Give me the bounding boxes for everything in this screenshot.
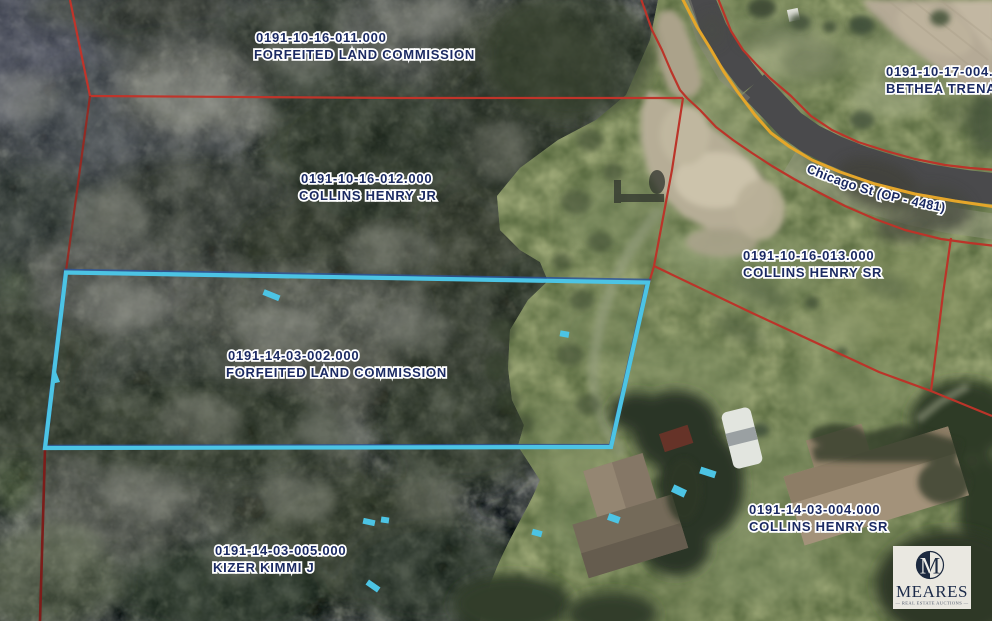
svg-text:— REAL ESTATE AUCTIONS —: — REAL ESTATE AUCTIONS — xyxy=(894,601,968,606)
svg-text:0191-10-16-012.000: 0191-10-16-012.000 xyxy=(301,171,432,186)
svg-text:KIZER KIMMI J: KIZER KIMMI J xyxy=(213,560,314,575)
svg-text:0191-10-16-011.000: 0191-10-16-011.000 xyxy=(256,30,387,45)
svg-text:COLLINS HENRY SR: COLLINS HENRY SR xyxy=(749,519,888,534)
svg-text:MEARES: MEARES xyxy=(896,582,968,601)
svg-text:0191-14-03-002.000: 0191-14-03-002.000 xyxy=(228,348,359,363)
svg-text:COLLINS HENRY SR: COLLINS HENRY SR xyxy=(743,265,882,280)
svg-text:COLLINS HENRY JR: COLLINS HENRY JR xyxy=(299,188,437,203)
svg-text:BETHEA TRENA: BETHEA TRENA xyxy=(886,81,992,96)
svg-text:FORFEITED LAND COMMISSION: FORFEITED LAND COMMISSION xyxy=(254,47,475,62)
svg-text:0191-10-17-004.0: 0191-10-17-004.0 xyxy=(886,64,992,79)
svg-text:0191-14-03-004.000: 0191-14-03-004.000 xyxy=(749,502,880,517)
svg-text:0191-10-16-013.000: 0191-10-16-013.000 xyxy=(743,248,874,263)
svg-text:0191-14-03-005.000: 0191-14-03-005.000 xyxy=(215,543,346,558)
svg-text:FORFEITED LAND COMMISSION: FORFEITED LAND COMMISSION xyxy=(226,365,447,380)
